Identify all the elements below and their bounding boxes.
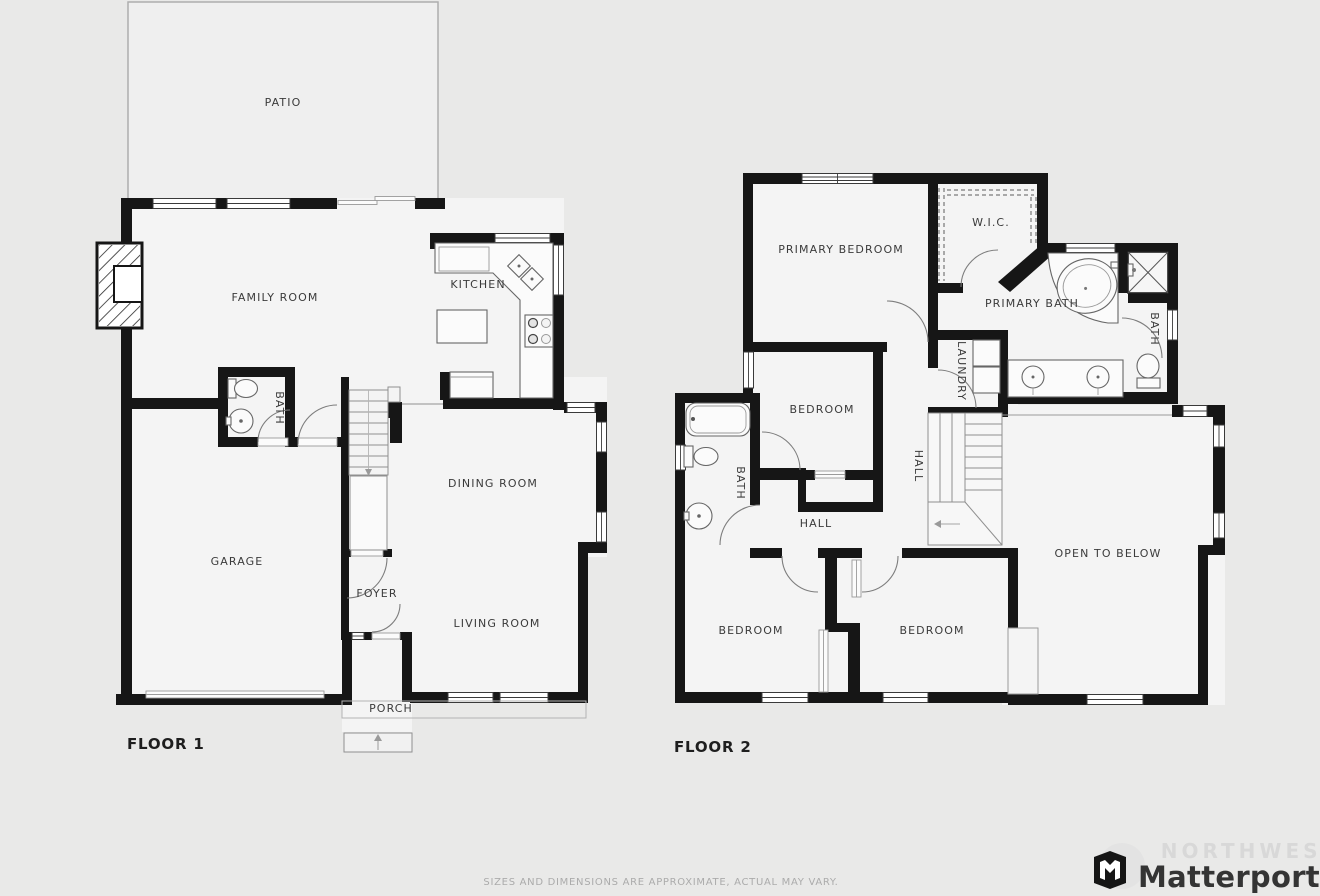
- floorplan-svg: PATIO FAMILY ROOM KITCHEN BATH GARAGE DI…: [0, 0, 1320, 896]
- room-label-foyer: FOYER: [356, 587, 397, 600]
- floor2-title: FLOOR 2: [674, 738, 752, 756]
- room-label-wic: W.I.C.: [972, 216, 1010, 229]
- room-label-open-to-below: OPEN TO BELOW: [1055, 547, 1162, 560]
- floor1-plan: PATIO FAMILY ROOM KITCHEN BATH GARAGE DI…: [97, 2, 607, 753]
- room-label-bedroom-mid: BEDROOM: [789, 403, 854, 416]
- room-label-garage: GARAGE: [211, 555, 264, 568]
- floor2-plan: PRIMARY BEDROOM W.I.C. PRIMARY BATH BATH…: [674, 173, 1225, 756]
- room-label-bath1: BATH: [273, 391, 286, 425]
- laundry-machines: [973, 340, 1000, 393]
- room-label-bedroom-left: BEDROOM: [718, 624, 783, 637]
- floor1-title: FLOOR 1: [127, 735, 205, 753]
- matterport-wordmark: Matterport: [1138, 860, 1320, 894]
- staircase-floor2: [928, 413, 1002, 545]
- footer: SIZES AND DIMENSIONS ARE APPROXIMATE, AC…: [483, 839, 1320, 894]
- floorplan-page: PATIO FAMILY ROOM KITCHEN BATH GARAGE DI…: [0, 0, 1320, 896]
- room-label-family-room: FAMILY ROOM: [231, 291, 318, 304]
- disclaimer-text: SIZES AND DIMENSIONS ARE APPROXIMATE, AC…: [483, 877, 838, 888]
- tub-icon: [686, 403, 750, 436]
- room-label-bath-left: BATH: [734, 466, 747, 500]
- room-label-bedroom-right: BEDROOM: [899, 624, 964, 637]
- vanity-double-sink: [1008, 360, 1123, 397]
- faucet-icon: [1111, 262, 1118, 268]
- room-label-primary-bedroom: PRIMARY BEDROOM: [778, 243, 904, 256]
- room-label-porch: PORCH: [369, 702, 413, 715]
- kitchen-island: [437, 310, 487, 343]
- room-label-primary-bath: PRIMARY BATH: [985, 297, 1079, 310]
- stove-icon: [525, 315, 553, 347]
- washer-icon: [973, 340, 1000, 366]
- dryer-icon: [973, 367, 1000, 393]
- room-label-patio: PATIO: [265, 96, 302, 109]
- sliding-door: [375, 197, 415, 201]
- shower-icon: [1128, 252, 1168, 293]
- room-label-hall-vertical: HALL: [912, 450, 925, 482]
- refrigerator-icon: [450, 372, 493, 398]
- room-label-bath-right: BATH: [1148, 312, 1161, 346]
- room-label-laundry: LAUNDRY: [955, 341, 968, 401]
- toilet-icon: [1137, 354, 1160, 388]
- sliding-door: [338, 201, 377, 205]
- fireplace-icon: [97, 243, 142, 328]
- matterport-logo-icon: [1094, 851, 1126, 889]
- room-label-dining-room: DINING ROOM: [448, 477, 538, 490]
- chimney-chase: [1008, 628, 1038, 694]
- room-label-kitchen: KITCHEN: [450, 278, 505, 291]
- room-label-hall: HALL: [800, 517, 832, 530]
- toilet-icon: [684, 446, 718, 467]
- room-label-living-room: LIVING ROOM: [454, 617, 541, 630]
